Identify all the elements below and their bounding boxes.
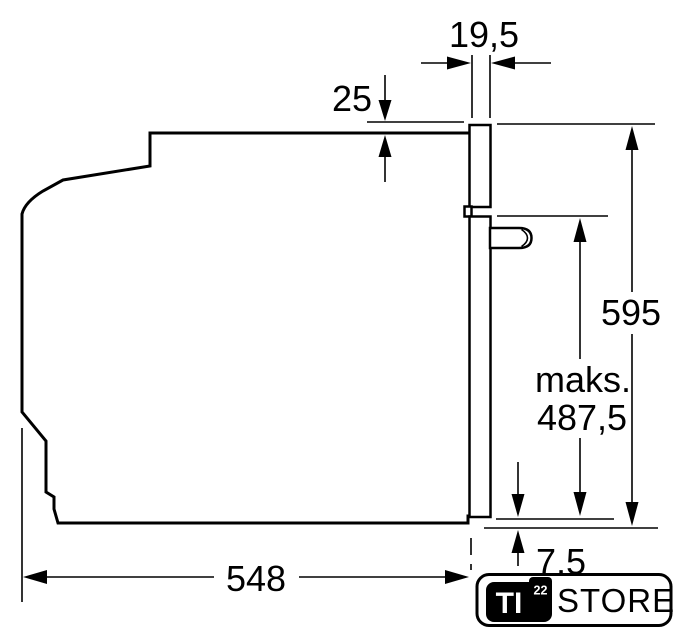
arrow-right-icon — [445, 570, 469, 584]
arrow-up-icon — [379, 135, 392, 157]
ti-store-logo: TI 22 STORE — [477, 575, 675, 626]
technical-drawing-svg: 19,5 25 595 maks. 487,5 7,5 — [0, 0, 682, 640]
dim-fascia-thickness: 19,5 — [421, 14, 551, 118]
arrow-left-icon — [491, 57, 515, 70]
arrow-up-icon — [512, 530, 525, 553]
arrow-down-icon — [379, 100, 392, 121]
dim-depth: 548 — [22, 428, 471, 602]
oven-body — [22, 125, 532, 523]
oven-body-outline — [22, 133, 470, 523]
oven-fascia — [470, 125, 491, 207]
logo-store-text: STORE — [557, 582, 675, 619]
dim-label-top-overlap: 25 — [332, 78, 372, 119]
door-handle — [490, 228, 532, 248]
arrow-down-icon — [574, 492, 587, 516]
arrow-left-icon — [23, 570, 47, 584]
arrow-right-icon — [447, 57, 471, 70]
dim-label-total-height: 595 — [601, 292, 661, 333]
dim-label-fascia-thickness: 19,5 — [449, 14, 519, 55]
arrow-up-icon — [626, 126, 639, 150]
dim-max-height: maks. 487,5 — [497, 216, 631, 516]
dim-bottom-overlap: 7,5 — [496, 462, 614, 582]
oven-door — [470, 217, 491, 518]
logo-ti-text: TI — [496, 587, 523, 620]
fascia-tab — [465, 207, 472, 217]
dim-label-max-prefix: maks. — [535, 359, 631, 400]
dim-label-depth: 548 — [226, 558, 286, 599]
logo-exp-text: 22 — [534, 584, 548, 598]
oven-dimension-diagram: 19,5 25 595 maks. 487,5 7,5 — [0, 0, 682, 640]
dim-total-height: 595 — [484, 124, 661, 528]
dim-top-overlap: 25 — [332, 75, 464, 182]
arrow-down-icon — [626, 502, 639, 526]
arrow-up-icon — [574, 218, 587, 242]
arrow-down-icon — [512, 494, 525, 517]
dim-label-max-height: 487,5 — [537, 397, 627, 438]
